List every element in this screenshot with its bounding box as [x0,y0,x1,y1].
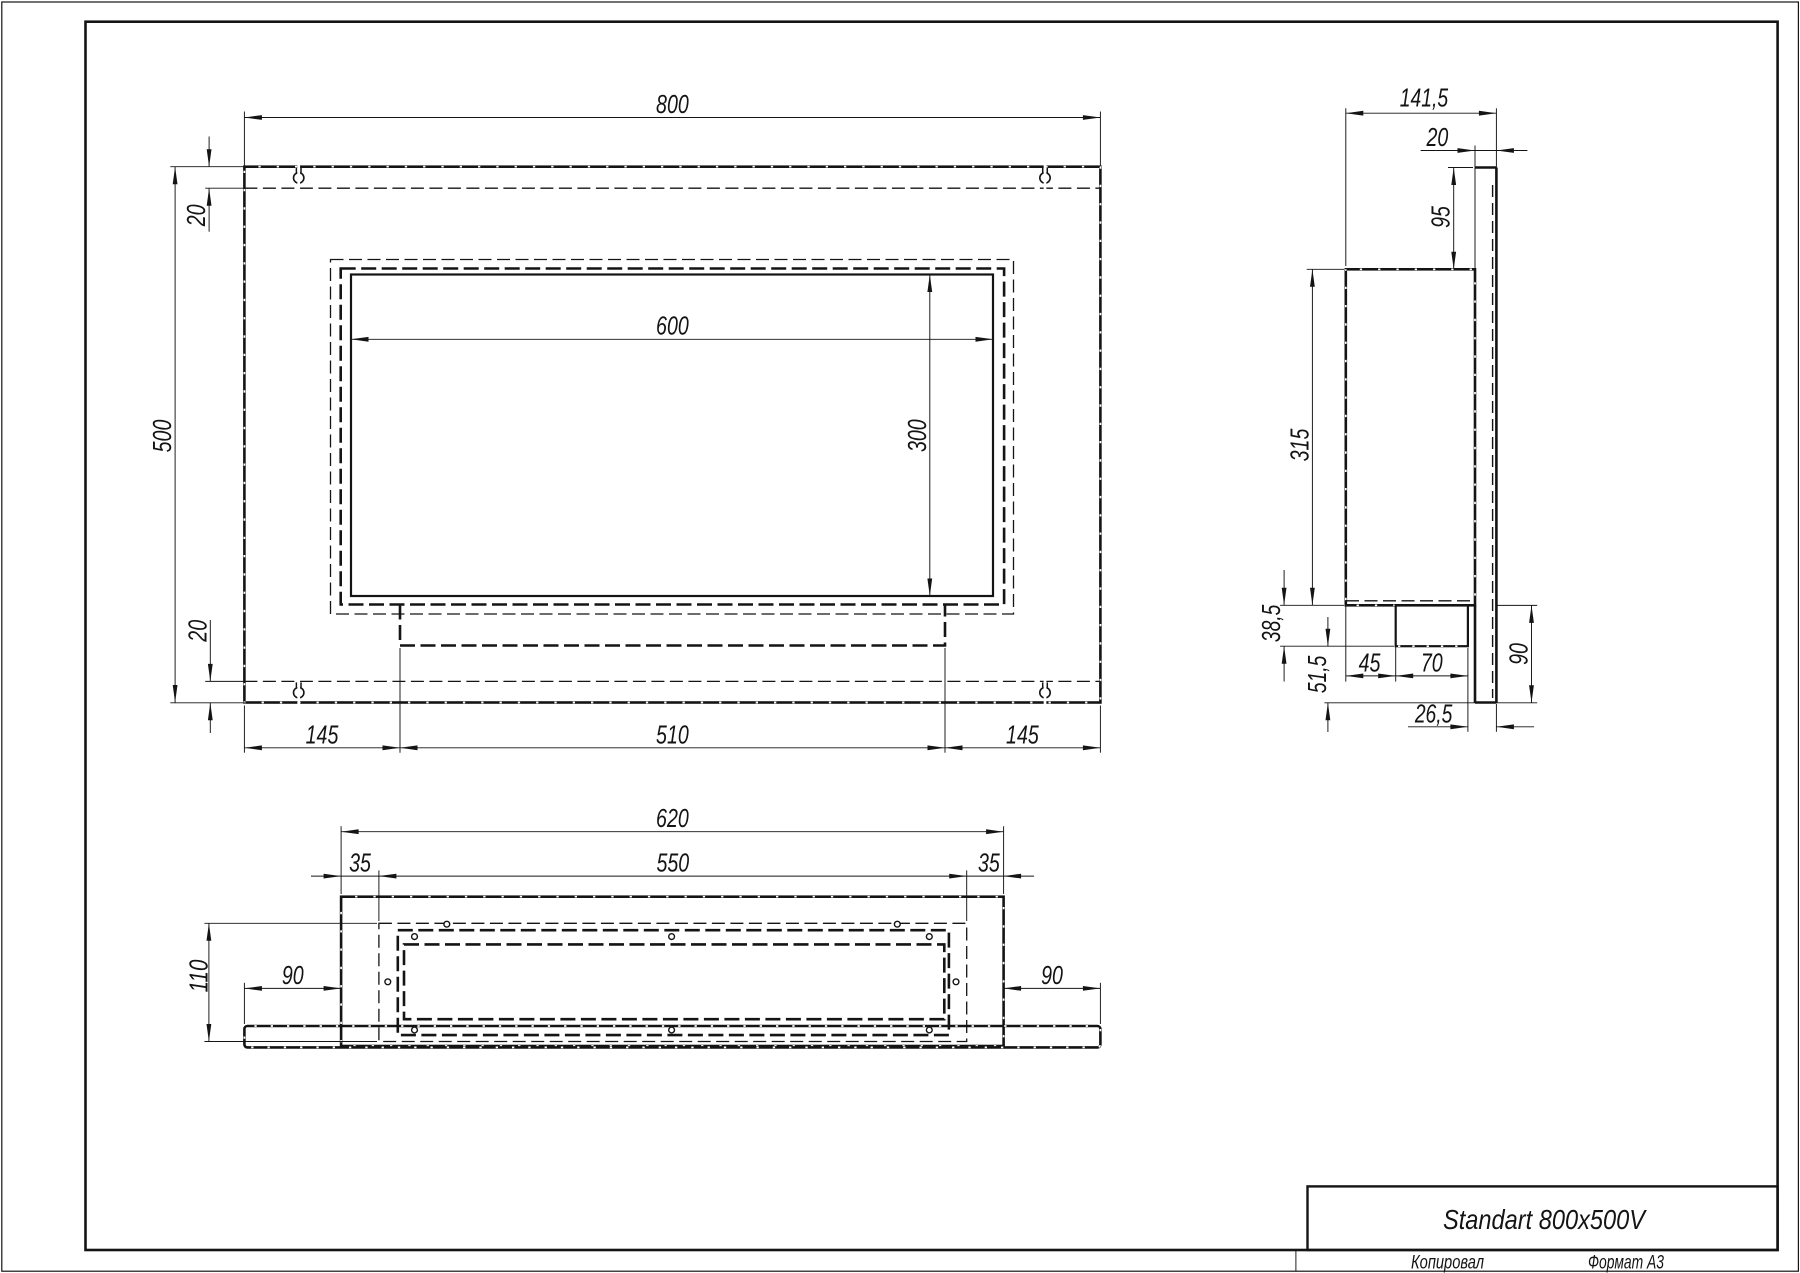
svg-text:90: 90 [1504,643,1534,665]
svg-text:90: 90 [1041,960,1063,990]
svg-text:620: 620 [656,803,689,833]
svg-text:Копировал: Копировал [1411,1253,1484,1273]
svg-text:141,5: 141,5 [1400,83,1449,113]
svg-text:145: 145 [1006,719,1039,749]
svg-text:20: 20 [1426,122,1449,152]
svg-text:800: 800 [656,89,689,119]
svg-text:45: 45 [1359,647,1381,677]
svg-text:145: 145 [306,719,339,749]
svg-text:510: 510 [656,719,689,749]
svg-text:300: 300 [902,419,932,452]
svg-text:Формат А3: Формат А3 [1588,1253,1664,1273]
svg-text:51,5: 51,5 [1302,655,1332,693]
svg-text:35: 35 [978,848,1000,878]
svg-text:500: 500 [147,419,177,452]
svg-text:90: 90 [282,960,304,990]
svg-text:20: 20 [182,619,212,642]
svg-text:70: 70 [1421,647,1443,677]
svg-text:35: 35 [349,848,371,878]
svg-text:315: 315 [1284,428,1314,461]
svg-text:95: 95 [1426,206,1456,228]
svg-text:38,5: 38,5 [1256,604,1286,642]
svg-text:550: 550 [656,848,689,878]
svg-text:20: 20 [181,204,211,227]
svg-text:600: 600 [656,310,689,340]
svg-text:Standart 800x500V: Standart 800x500V [1443,1204,1647,1235]
svg-text:26,5: 26,5 [1414,698,1453,728]
svg-text:110: 110 [183,959,213,992]
